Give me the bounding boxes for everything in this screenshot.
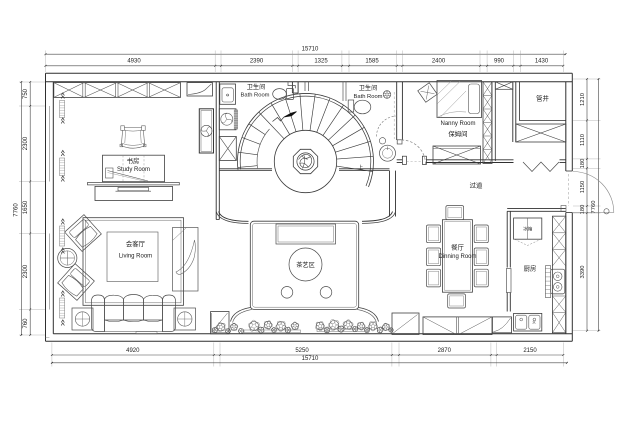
svg-text:1325: 1325 (314, 58, 328, 64)
svg-text:4930: 4930 (127, 58, 141, 64)
svg-text:水: 水 (532, 320, 536, 325)
svg-text:Study Room: Study Room (117, 167, 150, 173)
svg-text:卫生间: 卫生间 (247, 83, 266, 91)
svg-text:Dinning Room: Dinning Room (438, 254, 476, 260)
svg-text:2870: 2870 (438, 348, 452, 354)
svg-text:2300: 2300 (23, 136, 29, 150)
svg-text:Bath Room: Bath Room (241, 93, 270, 99)
svg-text:上: 上 (358, 164, 364, 172)
svg-text:1430: 1430 (535, 58, 549, 64)
svg-text:750: 750 (23, 88, 29, 99)
svg-text:2300: 2300 (23, 264, 29, 278)
svg-text:会客厅: 会客厅 (126, 239, 146, 248)
svg-text:15710: 15710 (302, 47, 319, 53)
svg-text:管井: 管井 (536, 94, 549, 103)
svg-text:15710: 15710 (302, 356, 319, 362)
svg-text:1650: 1650 (23, 200, 29, 214)
svg-text:过道: 过道 (470, 181, 483, 190)
svg-text:7760: 7760 (14, 203, 20, 217)
svg-text:1210: 1210 (580, 93, 586, 106)
svg-text:1150: 1150 (580, 181, 586, 193)
svg-text:2150: 2150 (523, 348, 537, 354)
svg-text:4920: 4920 (126, 348, 140, 354)
svg-text:1585: 1585 (365, 58, 379, 64)
svg-text:3390: 3390 (580, 266, 586, 279)
svg-text:Nanny Room: Nanny Room (440, 121, 475, 127)
svg-text:冰箱: 冰箱 (523, 226, 533, 233)
svg-text:990: 990 (494, 58, 505, 64)
svg-text:厨房: 厨房 (524, 264, 537, 273)
svg-text:1110: 1110 (580, 134, 586, 146)
svg-text:卫生间: 卫生间 (359, 84, 378, 92)
svg-text:180: 180 (580, 205, 586, 215)
svg-text:书房: 书房 (127, 156, 140, 165)
svg-text:2400: 2400 (432, 58, 446, 64)
svg-text:Bath Room: Bath Room (354, 94, 383, 100)
svg-text:180: 180 (580, 159, 586, 169)
svg-text:茶艺区: 茶艺区 (296, 261, 315, 269)
svg-text:7760: 7760 (591, 201, 597, 214)
svg-text:2390: 2390 (250, 58, 264, 64)
svg-text:餐厅: 餐厅 (451, 243, 464, 252)
svg-text:5250: 5250 (295, 348, 309, 354)
svg-text:760: 760 (23, 318, 29, 329)
svg-text:Living Room: Living Room (119, 254, 152, 260)
svg-text:保姆间: 保姆间 (448, 129, 467, 138)
